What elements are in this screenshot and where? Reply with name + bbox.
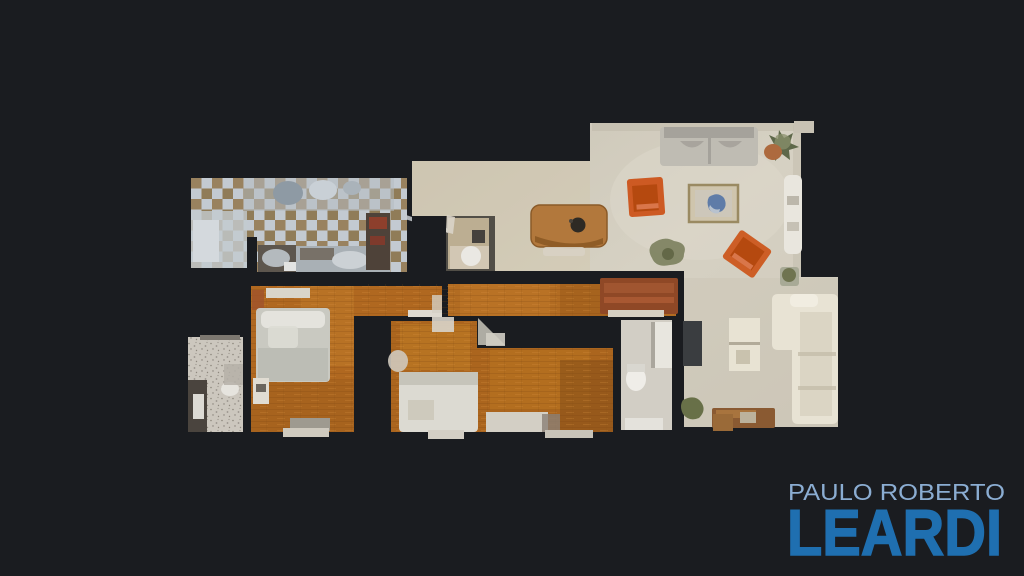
svg-text:LEARDI: LEARDI bbox=[787, 496, 1002, 569]
